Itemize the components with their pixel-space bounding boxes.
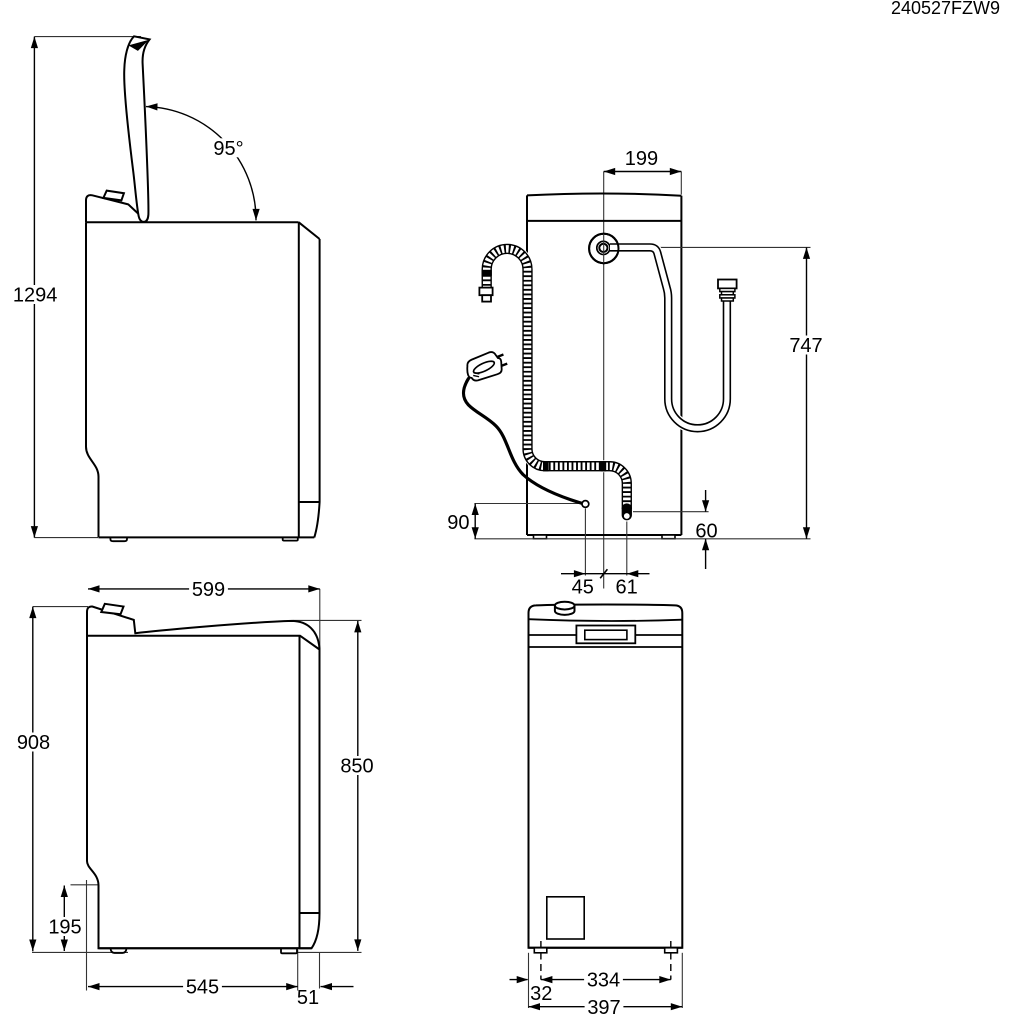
svg-text:95°: 95°: [213, 138, 243, 160]
svg-text:51: 51: [297, 987, 319, 1009]
svg-text:1294: 1294: [13, 285, 58, 307]
svg-text:195: 195: [48, 917, 81, 939]
svg-text:908: 908: [17, 732, 50, 754]
svg-text:32: 32: [530, 983, 552, 1005]
svg-text:90: 90: [447, 512, 469, 534]
svg-text:60: 60: [695, 521, 717, 543]
svg-text:599: 599: [192, 579, 225, 601]
svg-text:397: 397: [587, 997, 620, 1016]
svg-text:61: 61: [615, 577, 637, 599]
svg-text:45: 45: [572, 577, 594, 599]
svg-text:199: 199: [625, 148, 658, 170]
svg-text:545: 545: [186, 977, 219, 999]
svg-text:747: 747: [789, 335, 822, 357]
svg-text:850: 850: [340, 756, 373, 778]
svg-text:334: 334: [587, 970, 620, 992]
svg-text:240527FZW9: 240527FZW9: [891, 0, 1000, 18]
